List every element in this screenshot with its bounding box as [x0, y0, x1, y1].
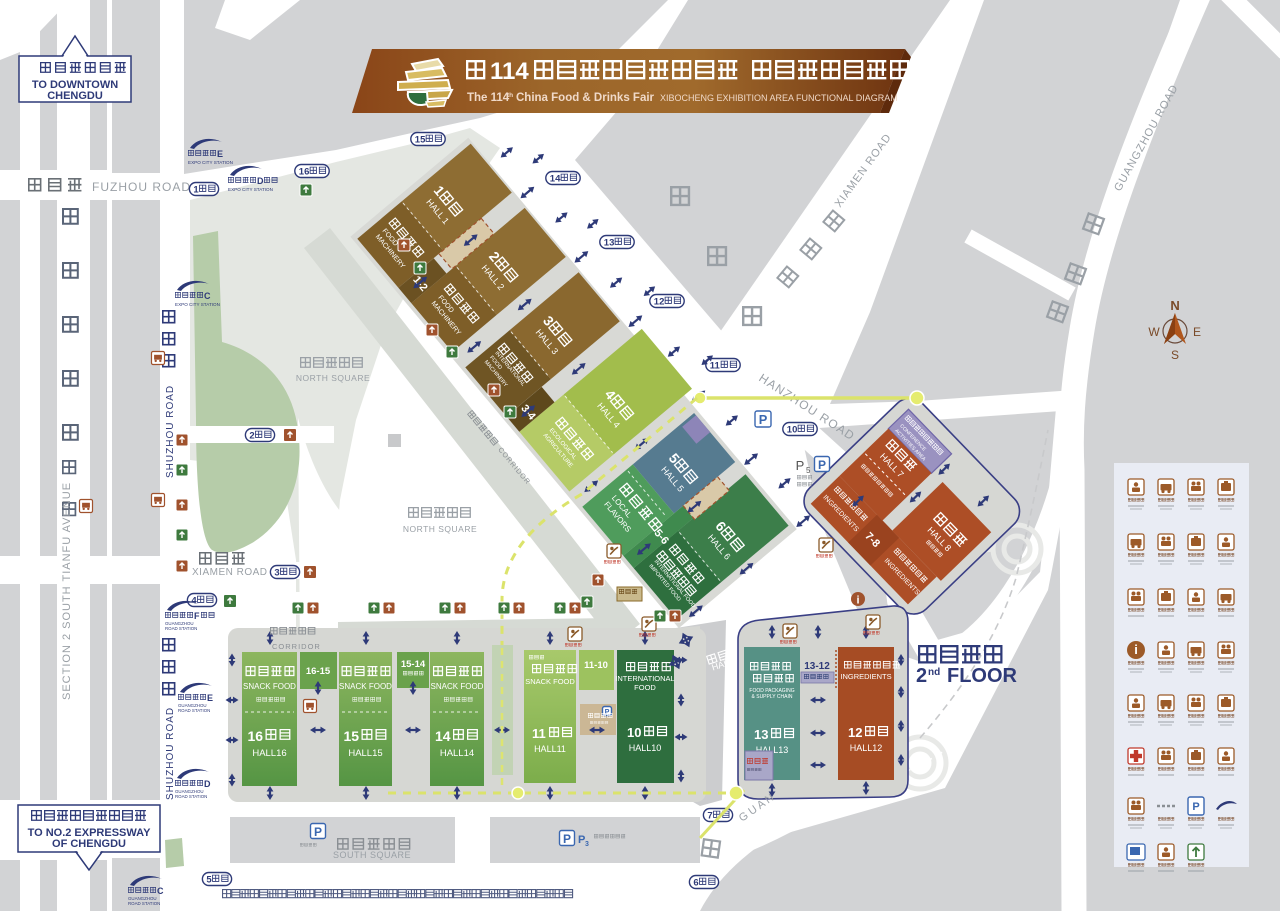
svg-text:SECTION 2 SOUTH TIANFU AVENUE: SECTION 2 SOUTH TIANFU AVENUE	[61, 482, 73, 700]
svg-text:SHUZHOU ROAD: SHUZHOU ROAD	[165, 707, 176, 800]
svg-text:5: 5	[806, 466, 811, 475]
svg-text:2: 2	[249, 430, 254, 441]
svg-text:XIBOCHENG EXHIBITION AREA FUNC: XIBOCHENG EXHIBITION AREA FUNCTIONAL DIA…	[660, 93, 898, 103]
svg-text:P: P	[796, 458, 805, 473]
svg-text:12: 12	[848, 725, 862, 740]
svg-text:D: D	[204, 779, 211, 789]
svg-text:15: 15	[415, 134, 426, 145]
svg-text:CORRIDOR: CORRIDOR	[272, 642, 321, 651]
svg-text:15-14: 15-14	[401, 659, 426, 670]
svg-text:D: D	[257, 176, 264, 186]
svg-text:11: 11	[710, 360, 721, 371]
svg-text:14: 14	[435, 728, 451, 744]
svg-text:ROAD STATION: ROAD STATION	[178, 708, 210, 713]
svg-text:3: 3	[274, 567, 279, 578]
svg-text:XIAMEN ROAD: XIAMEN ROAD	[192, 567, 268, 578]
svg-text:E: E	[207, 693, 213, 703]
svg-text:P: P	[314, 825, 322, 839]
svg-text:The 114: The 114	[467, 92, 510, 104]
svg-text:HALL15: HALL15	[348, 748, 382, 759]
svg-text:CHENGDU: CHENGDU	[47, 90, 103, 102]
svg-text:SNACK FOOD: SNACK FOOD	[243, 682, 296, 691]
svg-text:ROAD STATION: ROAD STATION	[175, 794, 207, 799]
svg-text:OF CHENGDU: OF CHENGDU	[52, 838, 126, 850]
svg-text:EXPO CITY STATION: EXPO CITY STATION	[228, 187, 273, 192]
svg-text:5: 5	[206, 874, 212, 885]
svg-text:11-10: 11-10	[584, 660, 608, 671]
svg-text:16-15: 16-15	[306, 666, 331, 677]
svg-text:INTERNATIONAL: INTERNATIONAL	[615, 674, 674, 683]
svg-text:SOUTH SQUARE: SOUTH SQUARE	[333, 850, 411, 860]
svg-text:ROAD STATION: ROAD STATION	[128, 901, 160, 906]
svg-text:F: F	[194, 611, 200, 621]
svg-text:10: 10	[627, 725, 641, 740]
svg-text:E: E	[217, 149, 223, 159]
svg-text:SNACK FOOD: SNACK FOOD	[525, 677, 575, 686]
svg-text:10: 10	[787, 424, 798, 435]
svg-text:i: i	[1134, 642, 1138, 657]
svg-text:P: P	[818, 458, 826, 472]
svg-text:13-12: 13-12	[804, 661, 830, 672]
svg-text:P: P	[759, 412, 768, 427]
svg-text:11: 11	[532, 726, 546, 741]
svg-text:NORTH SQUARE: NORTH SQUARE	[403, 524, 477, 534]
svg-text:P: P	[1192, 801, 1199, 813]
svg-text:S: S	[1171, 348, 1179, 362]
svg-text:HALL16: HALL16	[252, 748, 286, 759]
svg-text:13: 13	[604, 237, 615, 248]
svg-text:16: 16	[299, 166, 310, 177]
svg-text:FUZHOU ROAD: FUZHOU ROAD	[92, 180, 191, 194]
svg-text:HALL10: HALL10	[629, 743, 662, 753]
svg-text:7: 7	[707, 810, 712, 821]
svg-text:EXPO CITY STATION: EXPO CITY STATION	[188, 160, 233, 165]
svg-text:th: th	[507, 92, 513, 99]
svg-text:FLOOR: FLOOR	[947, 665, 1018, 687]
svg-text:2: 2	[916, 665, 927, 687]
svg-text:HALL12: HALL12	[850, 743, 883, 753]
svg-text:1: 1	[193, 184, 199, 195]
svg-text:114: 114	[490, 58, 529, 85]
svg-text:NORTH SQUARE: NORTH SQUARE	[296, 373, 370, 383]
svg-text:HALL14: HALL14	[440, 748, 474, 759]
svg-text:14: 14	[550, 173, 561, 184]
svg-text:N: N	[1170, 298, 1179, 313]
svg-text:C: C	[157, 886, 164, 896]
svg-text:& SUPPLY CHAIN: & SUPPLY CHAIN	[752, 694, 793, 700]
svg-text:3: 3	[585, 841, 589, 848]
svg-text:FOOD: FOOD	[634, 683, 656, 692]
svg-text:13: 13	[754, 727, 768, 742]
svg-text:16: 16	[248, 728, 264, 744]
svg-text:P: P	[563, 832, 571, 846]
svg-text:INGREDIENTS: INGREDIENTS	[840, 672, 891, 681]
svg-text:ROAD STATION: ROAD STATION	[165, 626, 197, 631]
svg-text:6: 6	[693, 877, 698, 888]
svg-text:nd: nd	[928, 667, 940, 678]
svg-text:EXPO CITY STATION: EXPO CITY STATION	[175, 302, 220, 307]
svg-text:4: 4	[191, 595, 197, 606]
svg-text:E: E	[1193, 325, 1201, 339]
svg-text:SHUZHOU ROAD: SHUZHOU ROAD	[165, 385, 176, 478]
svg-text:15: 15	[344, 728, 360, 744]
svg-text:12: 12	[654, 296, 665, 307]
svg-text:C: C	[204, 291, 211, 301]
svg-text:China Food & Drinks Fair: China Food & Drinks Fair	[516, 92, 655, 104]
svg-text:SNACK FOOD: SNACK FOOD	[431, 682, 484, 691]
svg-text:HALL11: HALL11	[534, 744, 566, 754]
svg-text:SNACK FOOD: SNACK FOOD	[339, 682, 392, 691]
svg-text:W: W	[1148, 325, 1160, 339]
svg-text:i: i	[856, 595, 859, 607]
